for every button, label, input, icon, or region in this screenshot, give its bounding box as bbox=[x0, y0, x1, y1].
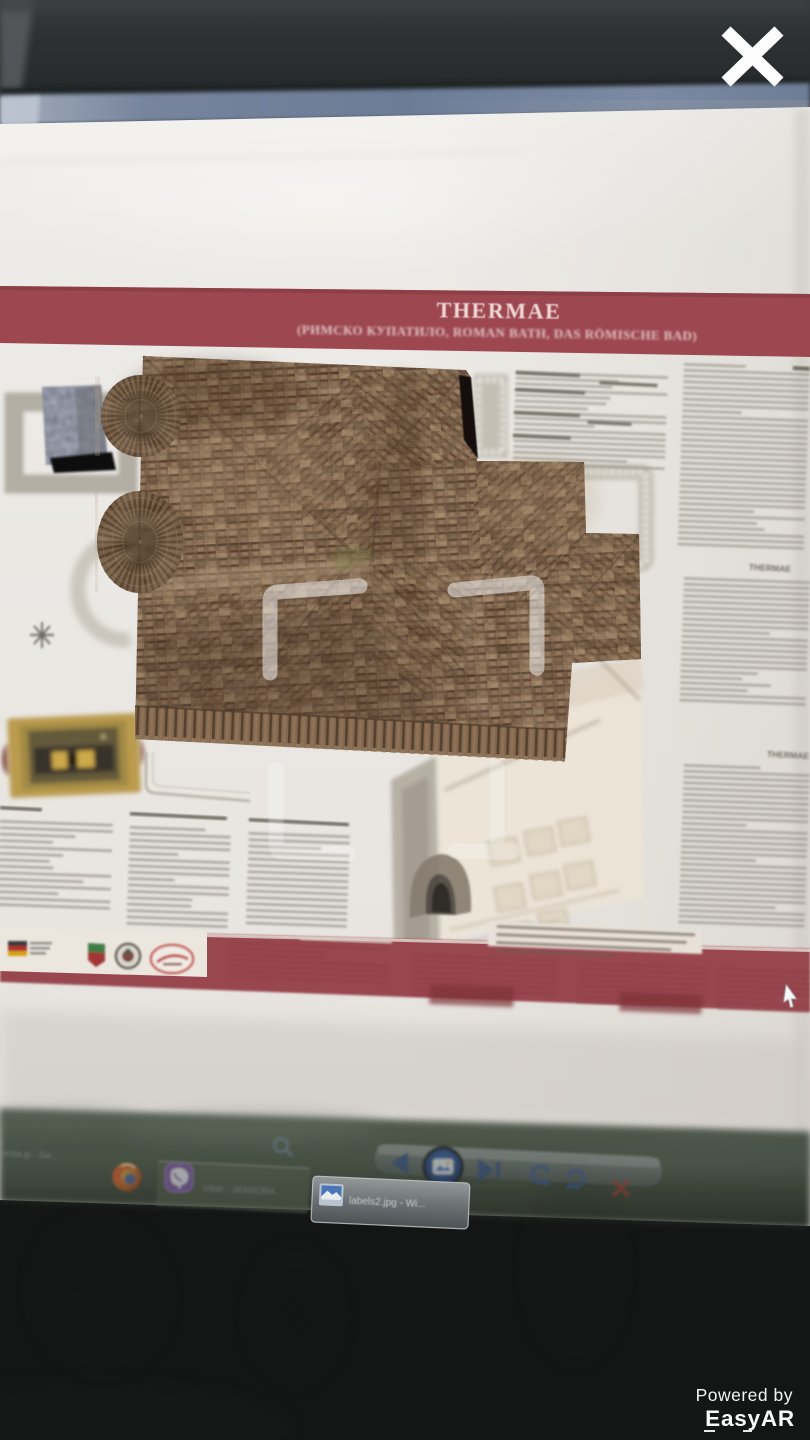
svg-text:EasyAR: EasyAR bbox=[705, 1406, 795, 1431]
svg-text:THERMAE: THERMAE bbox=[436, 297, 561, 324]
svg-text:THERMAE: THERMAE bbox=[767, 749, 810, 761]
svg-text:Powered by: Powered by bbox=[696, 1385, 793, 1405]
svg-text:THERMAE: THERMAE bbox=[749, 562, 792, 574]
